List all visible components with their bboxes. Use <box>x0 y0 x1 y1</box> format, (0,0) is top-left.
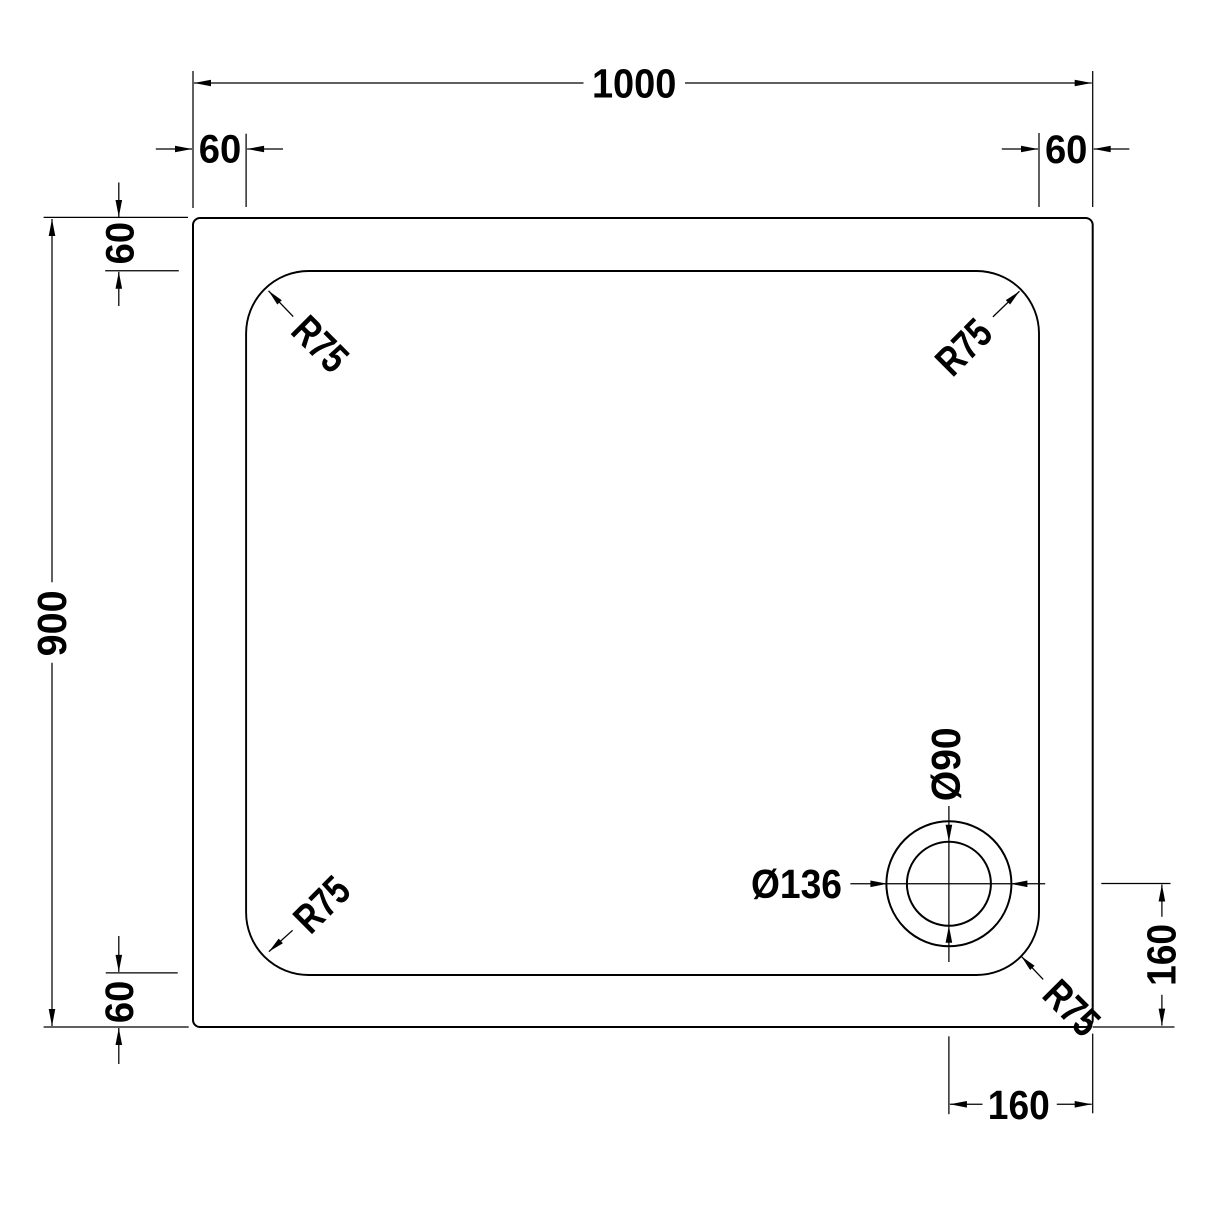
svg-text:60: 60 <box>199 128 242 172</box>
svg-text:R75: R75 <box>283 306 358 381</box>
svg-text:160: 160 <box>988 1082 1050 1128</box>
svg-text:R75: R75 <box>284 867 359 942</box>
svg-text:900: 900 <box>29 590 75 656</box>
svg-text:R75: R75 <box>926 310 1001 385</box>
svg-text:60: 60 <box>98 981 142 1024</box>
svg-text:R75: R75 <box>1034 970 1109 1045</box>
svg-text:Ø136: Ø136 <box>751 861 842 907</box>
svg-text:1000: 1000 <box>592 61 677 107</box>
svg-text:60: 60 <box>1045 128 1088 172</box>
svg-text:160: 160 <box>1139 924 1185 986</box>
svg-text:Ø90: Ø90 <box>923 727 969 801</box>
svg-text:60: 60 <box>98 222 142 265</box>
